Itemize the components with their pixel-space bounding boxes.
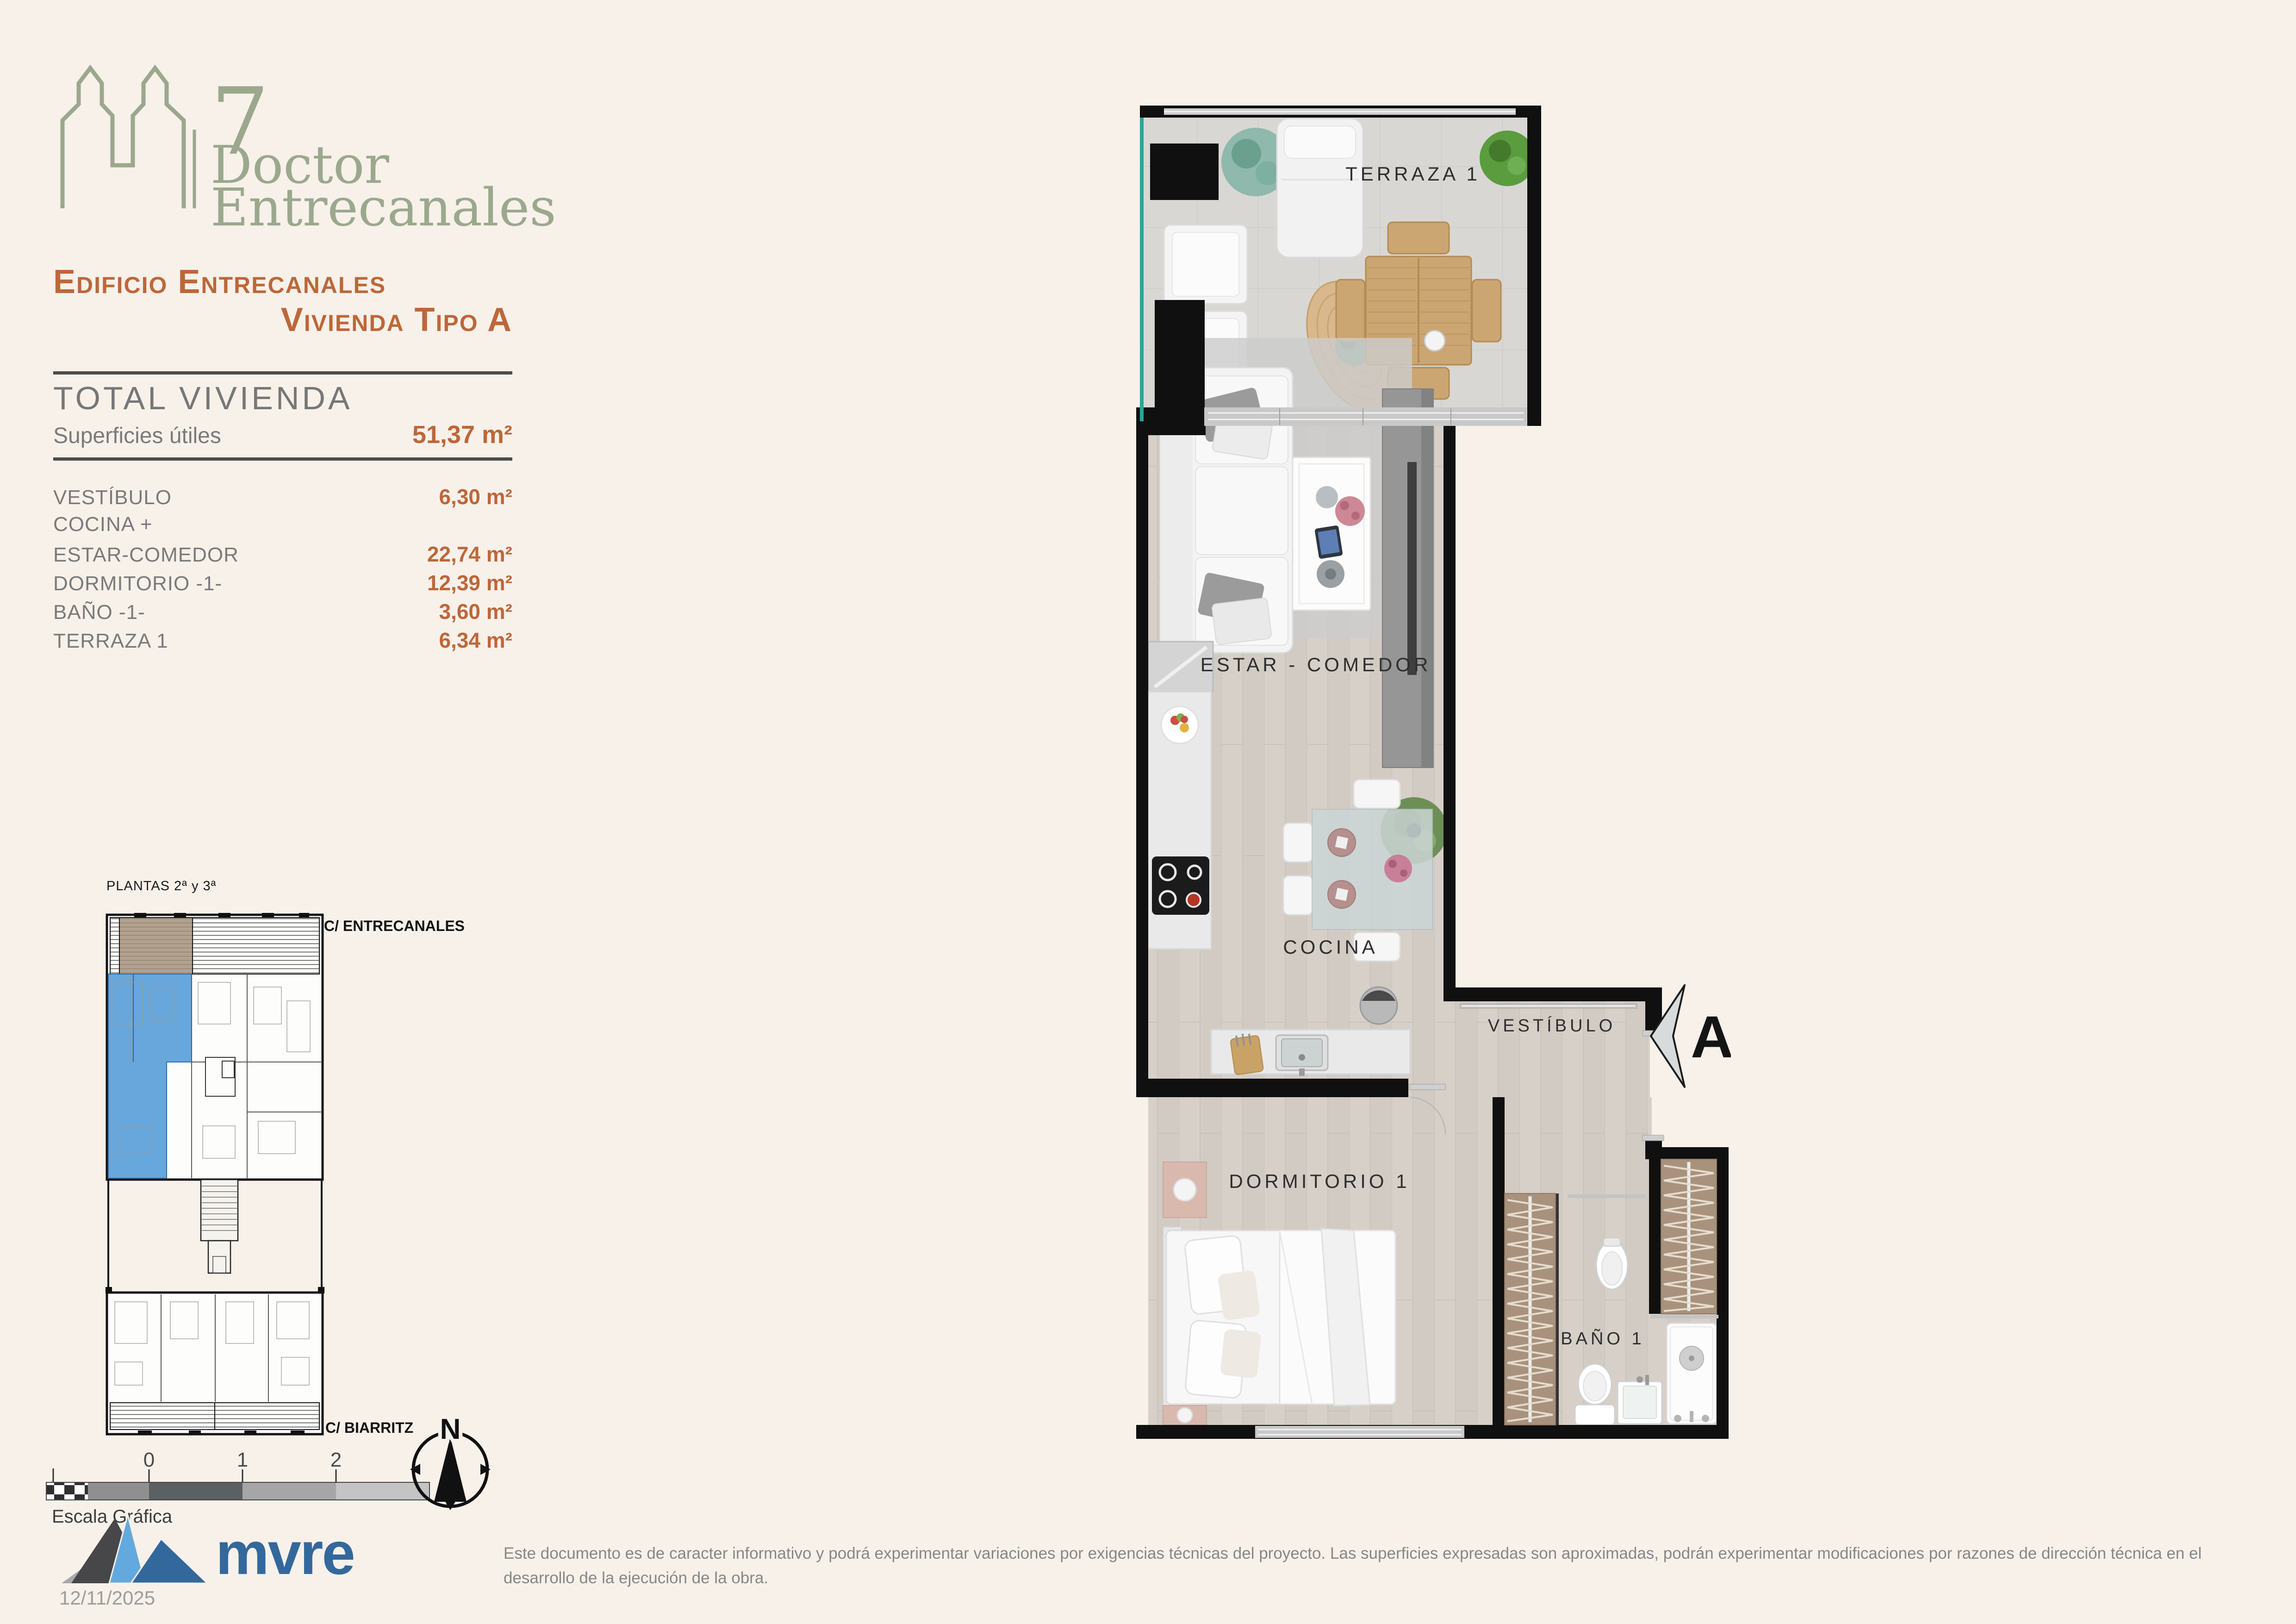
kitchen-sink <box>1276 1035 1328 1076</box>
window-band <box>1204 407 1527 426</box>
room-value: 3,60 m² <box>439 599 512 624</box>
bedroom-wardrobe <box>1505 1193 1556 1425</box>
divider-bottom <box>53 457 512 461</box>
glass-balustrade <box>1140 118 1144 421</box>
table-row: TERRAZA 1 6,34 m² <box>53 628 512 656</box>
disclaimer-text: Este documento es de caracter informativ… <box>504 1542 2207 1590</box>
scale-bar: 0 1 2 <box>44 1448 437 1504</box>
table-row: DORMITORIO -1- 12,39 m² <box>53 570 512 599</box>
title-unit-type: Vivienda Tipo A <box>53 303 512 338</box>
entrance-letter: A <box>1691 1004 1731 1070</box>
room-value: 6,30 m² <box>439 484 512 509</box>
hall-closet <box>1661 1159 1717 1314</box>
keyplan-courtyard <box>106 1180 324 1293</box>
mvre-wordmark: mvre <box>216 1519 354 1584</box>
flower-icon <box>1335 496 1365 526</box>
brand-logo: 7 Doctor Entrecanales <box>53 44 562 229</box>
cooktop <box>1152 856 1209 915</box>
entrance-marker: A <box>1651 985 1731 1087</box>
north-letter: N <box>440 1413 461 1445</box>
scale-tick-1: 1 <box>237 1449 248 1471</box>
door-sill <box>1409 1084 1445 1090</box>
coffee-table <box>1293 457 1370 610</box>
street-label-entrecanales: C/ ENTRECANALES <box>324 918 465 935</box>
fruit-bowl <box>1161 706 1198 743</box>
room-label: BAÑO -1- <box>53 601 145 624</box>
tv-unit <box>1382 389 1433 768</box>
label-terraza: TERRAZA 1 <box>1345 163 1481 185</box>
brand-line2: Entrecanales <box>211 178 556 229</box>
room-value: 22,74 m² <box>427 542 512 567</box>
label-vestibulo: VESTÍBULO <box>1488 1016 1616 1036</box>
summary-heading: TOTAL VIVIENDA <box>53 380 353 417</box>
label-cocina: COCINA <box>1283 936 1378 958</box>
building-icon <box>62 68 184 208</box>
room-label: DORMITORIO -1- <box>53 572 222 595</box>
room-label: VESTÍBULO <box>53 486 172 509</box>
document-title: Edificio Entrecanales Vivienda Tipo A <box>53 265 512 337</box>
summary-label: Superficies útiles <box>53 423 221 449</box>
scale-tick-0: 0 <box>143 1449 155 1471</box>
room-label: TERRAZA 1 <box>53 630 168 653</box>
tv-screen <box>1407 462 1417 675</box>
room-label: COCINA + <box>53 513 153 536</box>
room-areas-table: VESTÍBULO 6,30 m² COCINA + ESTAR-COMEDOR… <box>53 484 512 656</box>
room-value: 12,39 m² <box>427 570 512 595</box>
summary-total-value: 51,37 m² <box>412 420 512 449</box>
scale-tick-2: 2 <box>330 1449 342 1471</box>
north-arrow <box>434 1437 467 1502</box>
floor-plan: A TERRAZA 1 ESTAR - COMEDOR COCINA VESTÍ… <box>1136 106 1731 1439</box>
shower <box>1667 1323 1717 1424</box>
label-bano: BAÑO 1 <box>1561 1329 1644 1349</box>
room-label: ESTAR-COMEDOR <box>53 543 239 567</box>
flower-icon <box>1384 855 1412 882</box>
document-date: 12/11/2025 <box>59 1587 155 1609</box>
bathroom-sink <box>1618 1375 1662 1424</box>
table-row: BAÑO -1- 3,60 m² <box>53 599 512 628</box>
summary-row: Superficies útiles 51,37 m² <box>53 420 512 449</box>
label-estar-comedor: ESTAR - COMEDOR <box>1201 654 1431 675</box>
table-row: COCINA + <box>53 513 512 542</box>
title-building: Edificio Entrecanales <box>53 265 512 300</box>
divider-top <box>53 371 512 375</box>
keyplan-upper-block <box>107 913 323 1180</box>
door-sill <box>1568 1194 1645 1198</box>
keyplan-lower-block <box>107 1293 323 1434</box>
bedroom-window <box>1255 1426 1464 1438</box>
keyplan <box>106 908 325 1438</box>
table-row: ESTAR-COMEDOR 22,74 m² <box>53 542 512 570</box>
brochure-page: 7 Doctor Entrecanales Edificio Entrecana… <box>0 0 2296 1624</box>
mvre-logo: mvre <box>55 1515 355 1584</box>
entrance-door-jamb <box>1643 1135 1664 1141</box>
street-label-biarritz: C/ BIARRITZ <box>325 1419 413 1437</box>
north-compass-icon: N <box>406 1413 494 1519</box>
toilet <box>1575 1364 1615 1425</box>
mountain-steel-blue <box>131 1539 207 1583</box>
label-dormitorio: DORMITORIO 1 <box>1229 1170 1410 1192</box>
double-bed <box>1163 1227 1395 1407</box>
table-row: VESTÍBULO 6,30 m² <box>53 484 512 513</box>
shower-glass <box>1651 1315 1718 1318</box>
room-value: 6,34 m² <box>439 628 512 653</box>
keyplan-title: PLANTAS 2ª y 3ª <box>106 879 216 894</box>
